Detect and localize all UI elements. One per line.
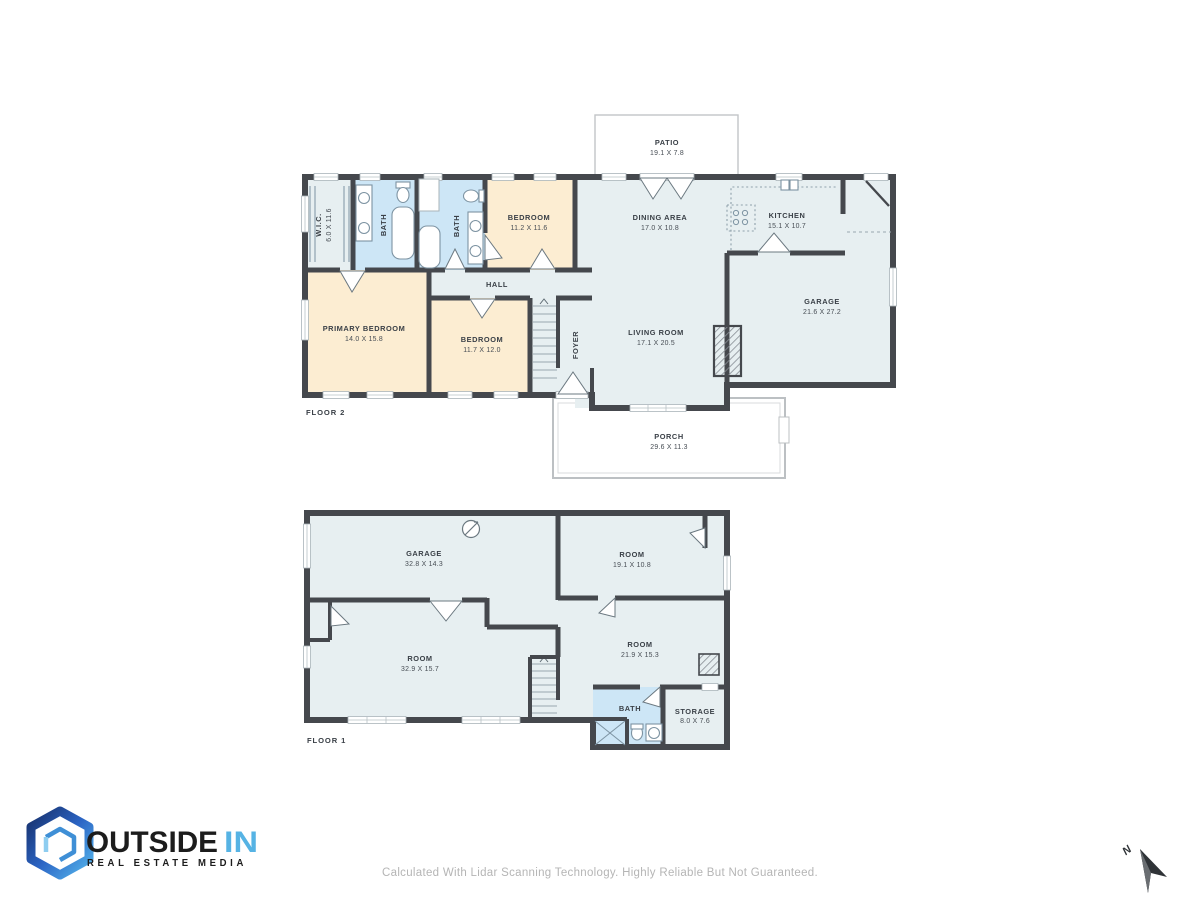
room-dims-patio: 19.1 X 7.8 (650, 150, 684, 157)
room-dims-room-large: 32.9 X 15.7 (401, 666, 439, 673)
room-label-garage2: GARAGE (804, 297, 840, 306)
room-label-room-large: ROOM (407, 654, 432, 663)
room-dims-storage: 8.0 X 7.6 (680, 718, 710, 725)
room-dims-dining: 17.0 X 10.8 (641, 225, 679, 232)
disclaimer-text: Calculated With Lidar Scanning Technolog… (382, 867, 818, 879)
brand-word-primary: OUTSIDE (86, 826, 218, 859)
water-heater-icon (463, 521, 480, 538)
room-fill-garage2 (730, 177, 893, 385)
floorplan-canvas: PATIO 19.1 X 7.8 W.I.C. 6.0 X 11.6 BATH … (0, 0, 1200, 900)
kitchen-sink-icon (790, 180, 798, 190)
floor2-label: FLOOR 2 (306, 408, 345, 417)
toilet-icon (397, 188, 409, 203)
crawlspace-hatch (699, 654, 719, 675)
brand-logo: OUTSIDE IN REAL ESTATE MEDIA (31, 811, 258, 875)
bathtub-icon (419, 226, 440, 268)
room-dims-garage2: 21.6 X 27.2 (803, 309, 841, 316)
fireplace-hatch (714, 326, 741, 376)
room-label-foyer: FOYER (571, 331, 580, 359)
room-label-room-lower: ROOM (627, 640, 652, 649)
room-label-dining: DINING AREA (633, 213, 688, 222)
room-label-living: LIVING ROOM (628, 328, 684, 337)
north-label: N (1120, 843, 1134, 858)
floorplan-page: PATIO 19.1 X 7.8 W.I.C. 6.0 X 11.6 BATH … (0, 0, 1200, 900)
north-arrow-icon: N (1120, 843, 1167, 893)
floor2-plan: PATIO 19.1 X 7.8 W.I.C. 6.0 X 11.6 BATH … (302, 115, 897, 478)
room-dims-garage1: 32.8 X 14.3 (405, 561, 443, 568)
bath1-fixtures (631, 724, 662, 741)
room-dims-room-lower: 21.9 X 15.3 (621, 652, 659, 659)
brand-word-accent: IN (224, 826, 258, 859)
room-dims-living: 17.1 X 20.5 (637, 340, 675, 347)
room-dims-bedroom-a: 11.2 X 11.6 (511, 225, 548, 232)
kitchen-sink-icon (781, 180, 789, 190)
toilet-icon (631, 724, 643, 729)
floor1-plan: GARAGE 32.8 X 14.3 ROOM 19.1 X 10.8 ROOM… (304, 513, 731, 747)
room-label-porch: PORCH (654, 432, 683, 441)
room-dims-room-upper: 19.1 X 10.8 (613, 562, 651, 569)
room-fill-living-dining (575, 177, 730, 408)
room-dims-porch: 29.6 X 11.3 (650, 444, 688, 451)
room-dims-bedroom-b: 11.7 X 12.0 (463, 347, 501, 354)
sink-icon (470, 246, 481, 257)
sink-icon (359, 193, 370, 204)
room-label-bedroom-b: BEDROOM (461, 335, 503, 344)
room-dims-kitchen: 15.1 X 10.7 (768, 223, 806, 230)
room-label-primary: PRIMARY BEDROOM (323, 324, 406, 333)
room-label-garage1: GARAGE (406, 549, 442, 558)
brand-logo-icon (31, 811, 89, 875)
room-label-patio: PATIO (655, 138, 679, 147)
bathtub-icon (392, 207, 414, 259)
sink-icon (649, 728, 660, 739)
toilet-icon (464, 190, 479, 202)
room-label-storage: STORAGE (675, 707, 715, 716)
room-dims-wic: 6.0 X 11.6 (326, 208, 333, 241)
room-label-bath1: BATH (619, 704, 641, 713)
room-label-bedroom-a: BEDROOM (508, 213, 550, 222)
porch-step (779, 417, 789, 443)
room-label-hall: HALL (486, 280, 508, 289)
room-label-bath-b: BATH (452, 215, 461, 237)
room-label-wic: W.I.C. (314, 213, 323, 236)
closet-nook (419, 179, 439, 211)
room-dims-primary: 14.0 X 15.8 (345, 336, 383, 343)
room-label-kitchen: KITCHEN (769, 211, 806, 220)
brand-tagline: REAL ESTATE MEDIA (87, 857, 247, 869)
room-label-bath-a: BATH (379, 214, 388, 236)
sink-icon (359, 223, 370, 234)
sink-icon (470, 221, 481, 232)
patio-area (595, 115, 738, 179)
room-label-room-upper: ROOM (619, 550, 644, 559)
floor1-label: FLOOR 1 (307, 736, 346, 745)
toilet-icon (479, 190, 484, 202)
